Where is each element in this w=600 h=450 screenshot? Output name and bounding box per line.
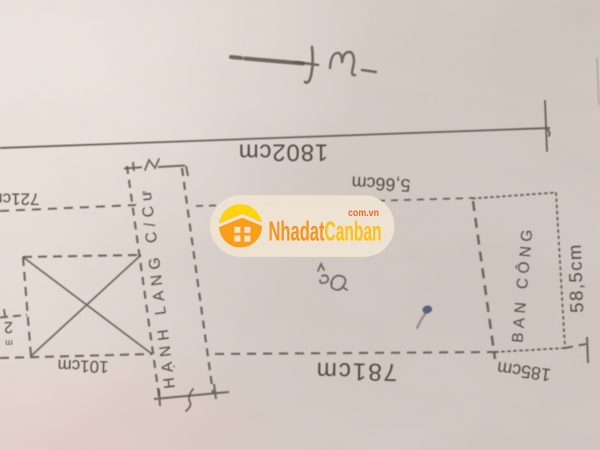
svg-text:58,5cm: 58,5cm [564, 243, 587, 313]
svg-text:Canban: Canban [325, 216, 382, 247]
svg-text:721cm: 721cm [0, 190, 40, 209]
svg-text:Nhadat: Nhadat [269, 216, 325, 247]
svg-text:com.vn: com.vn [348, 207, 379, 219]
svg-text:101cm: 101cm [57, 356, 109, 377]
svg-text:2: 2 [4, 318, 14, 335]
svg-text:5,66cm: 5,66cm [351, 172, 411, 195]
svg-text:BAN CÔNG: BAN CÔNG [509, 225, 536, 344]
svg-text:m: m [5, 338, 13, 348]
svg-text:781cm: 781cm [314, 357, 397, 385]
svg-text:1802cm: 1802cm [238, 139, 328, 166]
svg-text:185cm: 185cm [496, 358, 552, 385]
svg-text:HẠNH LANG C/Cư: HẠNH LANG C/Cư [137, 184, 179, 389]
